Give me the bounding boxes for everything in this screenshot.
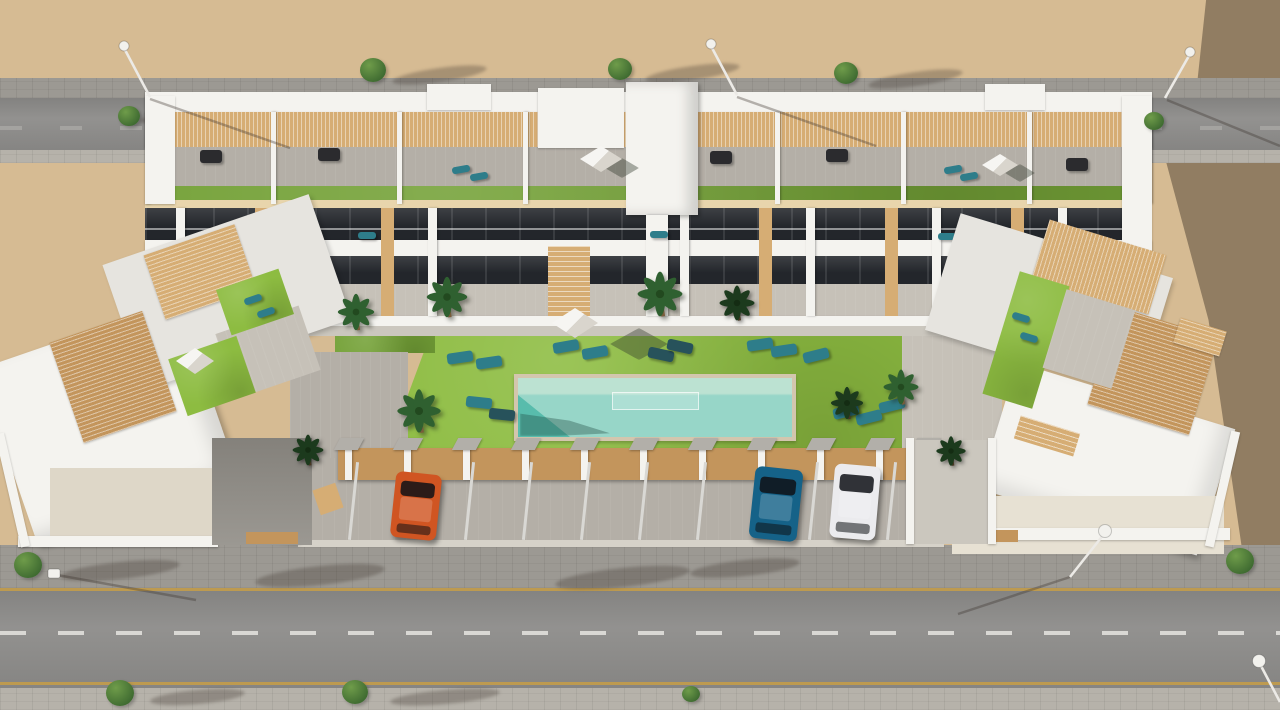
palm-tree — [388, 380, 450, 442]
street-bush — [14, 552, 42, 578]
roof-dining-set — [200, 150, 222, 163]
balcony-lounger — [650, 231, 668, 238]
stair-tower-small — [538, 88, 624, 148]
palm-tree — [330, 286, 382, 338]
parking-curb — [298, 540, 944, 547]
blue-car — [748, 466, 803, 543]
east-entry-wall — [988, 438, 996, 544]
north-roof-box — [427, 84, 491, 110]
bottom-street-yellow-line-top — [0, 588, 1280, 591]
street-bush — [834, 62, 858, 84]
west-gate-wood — [246, 532, 298, 544]
west-patio — [50, 468, 215, 540]
stair-tower-main — [626, 82, 698, 215]
wood-accent-panel — [381, 208, 394, 316]
carport-pillar — [463, 448, 470, 480]
unit-pier — [397, 112, 402, 204]
pool-splash-platform — [612, 392, 699, 410]
east-entry-wall — [906, 438, 914, 544]
palm-tree — [418, 268, 476, 326]
palm-tree — [712, 278, 762, 328]
roof-dining-set — [1066, 158, 1088, 171]
street-bush — [1226, 548, 1254, 574]
street-bush — [118, 106, 140, 126]
bottom-street-yellow-line-bottom — [0, 682, 1280, 685]
street-bush — [360, 58, 386, 82]
bottom-street-center-line — [0, 631, 1280, 635]
street-bush — [1144, 112, 1164, 130]
north-row-west-end — [145, 96, 175, 204]
roof-dining-set — [826, 149, 848, 162]
wood-accent-panel — [885, 208, 898, 316]
street-bush — [682, 686, 700, 702]
north-roof-box — [985, 84, 1045, 110]
facade-pier — [806, 208, 815, 316]
palm-tree — [930, 430, 972, 472]
aerial-render-scene — [0, 0, 1280, 710]
palm-tree — [628, 262, 692, 326]
street-bush — [608, 58, 632, 80]
street-bush — [342, 680, 368, 704]
west-boundary-wall — [18, 536, 218, 547]
roof-dining-set — [710, 151, 732, 164]
palm-tree — [824, 380, 870, 426]
palm-tree — [876, 362, 926, 412]
bottom-street-road — [0, 588, 1280, 688]
unit-pier — [523, 112, 528, 204]
unit-pier — [271, 112, 276, 204]
lawn-hedge-strip — [335, 336, 435, 353]
carport-pillar — [345, 448, 352, 480]
roof-dining-set — [318, 148, 340, 161]
outdoor-staircase — [548, 246, 590, 316]
orange-car — [390, 471, 443, 541]
unit-pier — [901, 112, 906, 204]
unit-pier — [775, 112, 780, 204]
palm-tree — [286, 428, 330, 472]
street-bush — [106, 680, 134, 706]
white-car — [829, 463, 881, 541]
balcony-lounger — [358, 232, 376, 239]
unit-pier — [1027, 112, 1032, 204]
